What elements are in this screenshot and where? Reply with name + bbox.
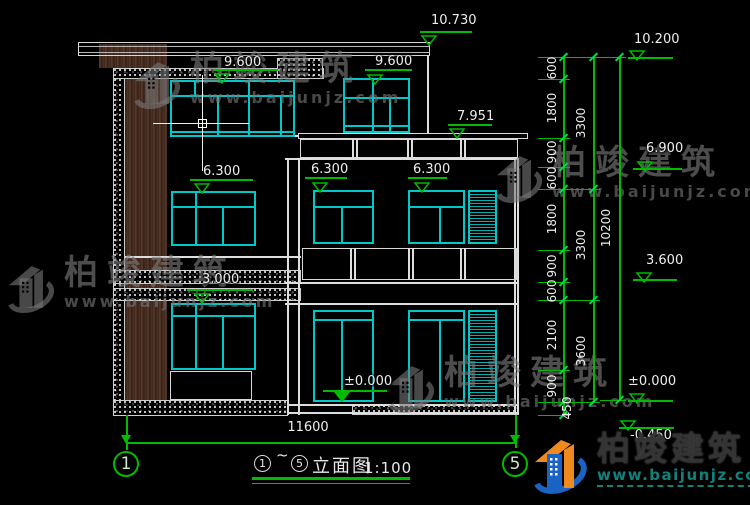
rail-post: [460, 248, 462, 280]
level-triangle-icon: [619, 416, 637, 427]
level-label: 6.900: [646, 142, 683, 156]
rail-post: [350, 248, 352, 280]
title-circle-end: 5: [291, 455, 308, 472]
window-2f-mid-frame: [313, 190, 374, 244]
level-label: 3.000: [202, 273, 239, 287]
ground-line: [287, 404, 519, 406]
level-label: 6.300: [203, 165, 240, 179]
dim-label: 1800: [545, 204, 559, 235]
dim-label: 3300: [574, 108, 588, 139]
level-label: 10.730: [431, 14, 477, 28]
level-label: 3.600: [646, 254, 683, 268]
wall-hatch-left: [113, 68, 125, 416]
rail-post: [408, 248, 410, 280]
dim-label: 600: [545, 57, 559, 80]
window-1f-right-frame: [408, 310, 465, 402]
window-3f-left-mullion: [194, 80, 196, 97]
dim-extension-line: [570, 189, 600, 190]
dim-extension-line: [570, 57, 600, 58]
rail-post: [464, 248, 466, 280]
dim-extension-line: [538, 370, 570, 371]
level-label: 6.300: [413, 163, 450, 177]
rail-post: [354, 248, 356, 280]
dim-label: 2100: [545, 320, 559, 351]
title-circle-start: 1: [254, 455, 271, 472]
dim-label: 900: [545, 255, 559, 278]
dim-chain-line: [563, 57, 565, 415]
front-block-wall-left: [287, 160, 289, 415]
window-3f-right-mullion: [372, 78, 374, 133]
window-1f-mid-transom: [313, 319, 374, 321]
dim-extension-line: [600, 57, 626, 58]
level-triangle-icon: [366, 70, 384, 81]
dim-label: 3300: [574, 230, 588, 261]
level-label: ±0.000: [344, 375, 392, 389]
front-block-wall-right-inner: [517, 160, 519, 413]
dim-extension-line: [600, 400, 626, 401]
window-3f-left-mullion: [280, 95, 282, 137]
spandrel-panel: [170, 371, 252, 400]
rail-post: [412, 248, 414, 280]
level-label: 7.951: [457, 110, 494, 124]
title-underline-thin: [252, 483, 410, 484]
window-2f-left-transom: [171, 206, 256, 208]
level-triangle-icon: [413, 178, 431, 189]
window-3f-right-transom: [343, 97, 410, 99]
dim-label: 1800: [545, 93, 559, 124]
dim-label-bottom: 11600: [278, 420, 338, 435]
window-3f-left-transom: [170, 95, 295, 97]
watermark-url: www.baijunjz.com: [552, 182, 750, 201]
dim-label: 900: [545, 375, 559, 398]
roof-slab-line: [79, 46, 429, 47]
louver-shutter-1f: [468, 310, 497, 402]
dim-label: 450: [560, 397, 574, 420]
level-triangle-icon: [333, 387, 351, 398]
rail-post: [352, 139, 354, 158]
window-1f-left-mullion: [195, 303, 197, 370]
dim-chain-line: [593, 57, 595, 402]
level-triangle-icon: [193, 179, 211, 190]
window-2f-right-frame: [408, 190, 465, 244]
back-building-right-edge: [427, 56, 429, 134]
level-triangle-icon: [635, 268, 653, 279]
level-triangle-icon: [636, 157, 654, 168]
cad-drawing-canvas[interactable]: 1 ~ 5 立面图 1:100 柏竣建筑 www.ba: [0, 0, 750, 505]
slab-line: [113, 256, 301, 258]
level-label: ±0.000: [628, 375, 676, 389]
brand-logo-text: 柏竣建筑: [597, 429, 745, 468]
dim-label: 10200: [599, 209, 613, 247]
level-triangle-icon: [628, 389, 646, 400]
title-tilde: ~: [276, 446, 289, 464]
dim-extension-line: [538, 250, 570, 251]
grid-bubble-5: 5: [502, 451, 528, 477]
brand-logo-url: www.baijunjz.com: [597, 466, 750, 487]
dim-label: 600: [545, 167, 559, 190]
title-underline: [252, 477, 410, 480]
dim-label: 900: [545, 141, 559, 164]
dim-arrow-icon: [510, 435, 520, 444]
window-1f-right-transom: [408, 319, 465, 321]
dim-label: 600: [545, 280, 559, 303]
window-3f-right-rail: [343, 125, 410, 127]
dim-label: 3600: [574, 336, 588, 367]
rail-post: [356, 139, 358, 158]
window-1f-left-frame: [171, 303, 256, 370]
level-triangle-icon: [448, 124, 466, 135]
level-triangle-icon: [213, 69, 231, 80]
window-1f-left-transom: [171, 315, 256, 317]
level-triangle-icon: [311, 178, 329, 189]
window-3f-left-mullion: [217, 95, 219, 137]
front-block-top: [285, 158, 519, 160]
front-block-wall-left-inner: [298, 160, 300, 415]
rail-post: [464, 139, 466, 158]
ground-line: [287, 412, 519, 414]
level-triangle-icon: [628, 46, 646, 57]
level-label: 6.300: [311, 163, 348, 177]
roof-parapet: [277, 58, 323, 79]
parapet-rail-top: [300, 139, 518, 158]
level-label: 9.600: [224, 56, 261, 70]
window-1f-left-mullion: [222, 315, 224, 370]
grid-bubble-1: 1: [113, 451, 139, 477]
floor-slab-line: [285, 282, 519, 284]
window-2f-right-transom: [408, 206, 465, 208]
level-label: 9.600: [375, 55, 412, 69]
window-2f-right-mullion: [439, 206, 441, 244]
dim-arrow-icon: [121, 435, 131, 444]
window-3f-left-mullion: [248, 80, 250, 137]
window-2f-left-mullion: [195, 191, 197, 246]
window-2f-mid-transom: [313, 206, 374, 208]
front-block-wall-right: [514, 160, 516, 413]
dim-chain-line: [619, 57, 621, 400]
window-3f-left-rail: [170, 131, 295, 133]
window-1f-right-mullion: [439, 319, 441, 402]
rail-post: [407, 139, 409, 158]
dim-line-bottom: [126, 442, 515, 444]
dim-extension-line: [538, 138, 570, 139]
level-triangle-icon: [420, 31, 438, 42]
floor-slab-line: [285, 303, 519, 305]
window-3f-left-frame: [170, 80, 295, 137]
balcony-rail-mid: [302, 248, 517, 280]
drawing-scale: 1:100: [364, 459, 412, 477]
rail-post: [460, 139, 462, 158]
window-2f-mid-mullion: [341, 206, 343, 244]
level-triangle-icon: [193, 289, 211, 300]
dim-extension-line: [570, 300, 600, 301]
plinth-hatch-left: [113, 400, 288, 416]
wood-column: [123, 68, 167, 401]
rail-post: [411, 139, 413, 158]
drawing-title: 立面图: [312, 452, 372, 478]
window-2f-left-frame: [171, 191, 256, 246]
window-2f-left-mullion: [222, 206, 224, 246]
louver-shutter-2f: [468, 190, 497, 244]
grid-leader-line: [126, 415, 128, 450]
roof-slab-line: [79, 52, 429, 53]
window-3f-right-mullion: [389, 97, 391, 133]
brand-logo-icon: [527, 432, 589, 500]
dim-extension-line: [570, 402, 600, 403]
brand-logo: 柏竣建筑 www.baijunjz.com: [527, 432, 750, 500]
crosshair-pickbox: [198, 119, 207, 128]
watermark-logo-icon: [2, 256, 56, 318]
level-label: 10.200: [634, 33, 680, 47]
